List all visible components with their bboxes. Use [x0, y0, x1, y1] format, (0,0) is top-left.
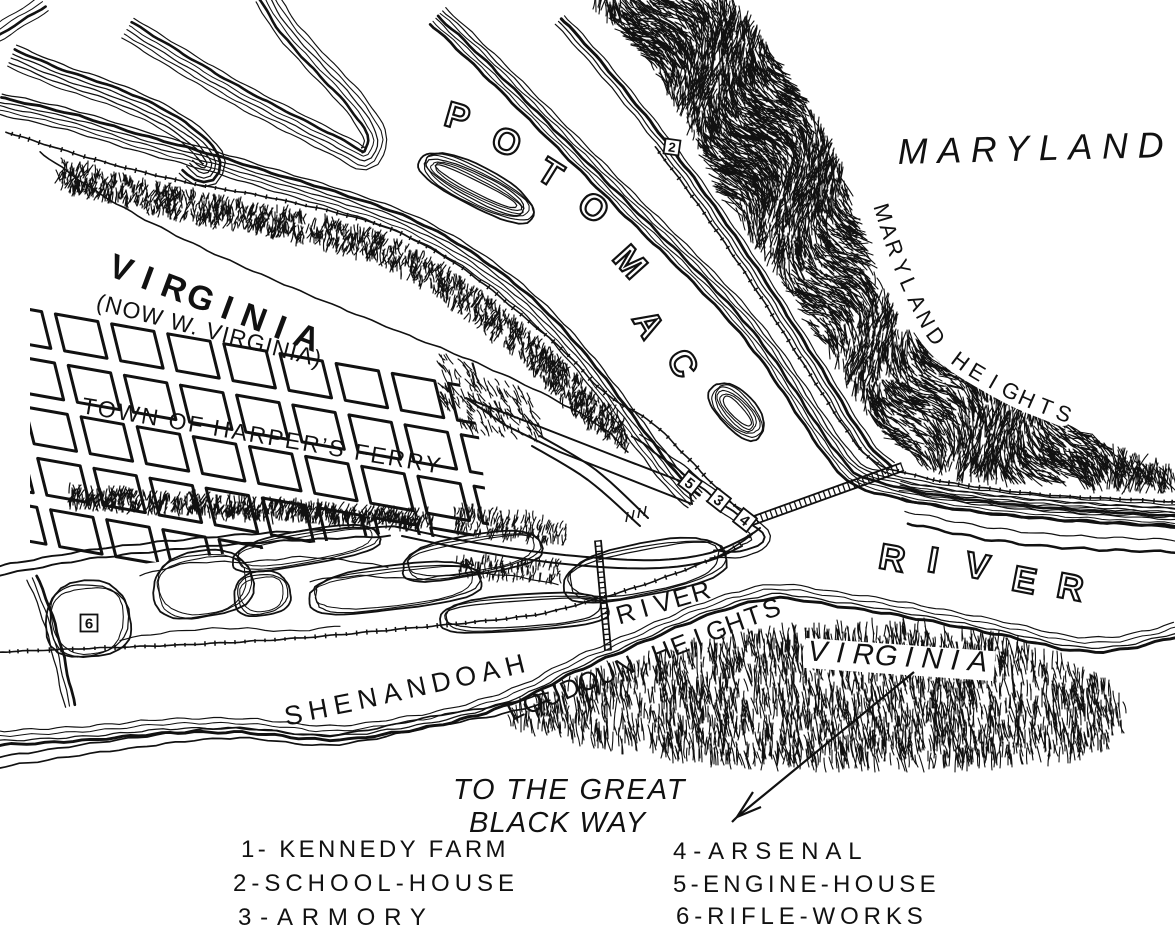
svg-text:4-ARSENAL: 4-ARSENAL [673, 838, 868, 865]
svg-text:2-SCHOOL-HOUSE: 2-SCHOOL-HOUSE [233, 870, 519, 897]
svg-text:6: 6 [85, 615, 93, 632]
svg-text:6-RIFLE-WORKS: 6-RIFLE-WORKS [676, 903, 928, 930]
svg-text:G: G [874, 640, 899, 673]
svg-text:TO THE GREAT: TO THE GREAT [453, 774, 687, 806]
svg-text:R: R [852, 638, 875, 671]
svg-text:5-ENGINE-HOUSE: 5-ENGINE-HOUSE [673, 871, 940, 898]
svg-text:N: N [920, 642, 943, 676]
svg-text:3-ARMORY: 3-ARMORY [238, 904, 435, 931]
svg-text:BLACK WAY: BLACK WAY [469, 807, 648, 839]
svg-text:A: A [965, 645, 989, 679]
svg-text:1- KENNEDY FARM: 1- KENNEDY FARM [241, 836, 509, 863]
svg-text:MARYLAND: MARYLAND [897, 124, 1173, 172]
